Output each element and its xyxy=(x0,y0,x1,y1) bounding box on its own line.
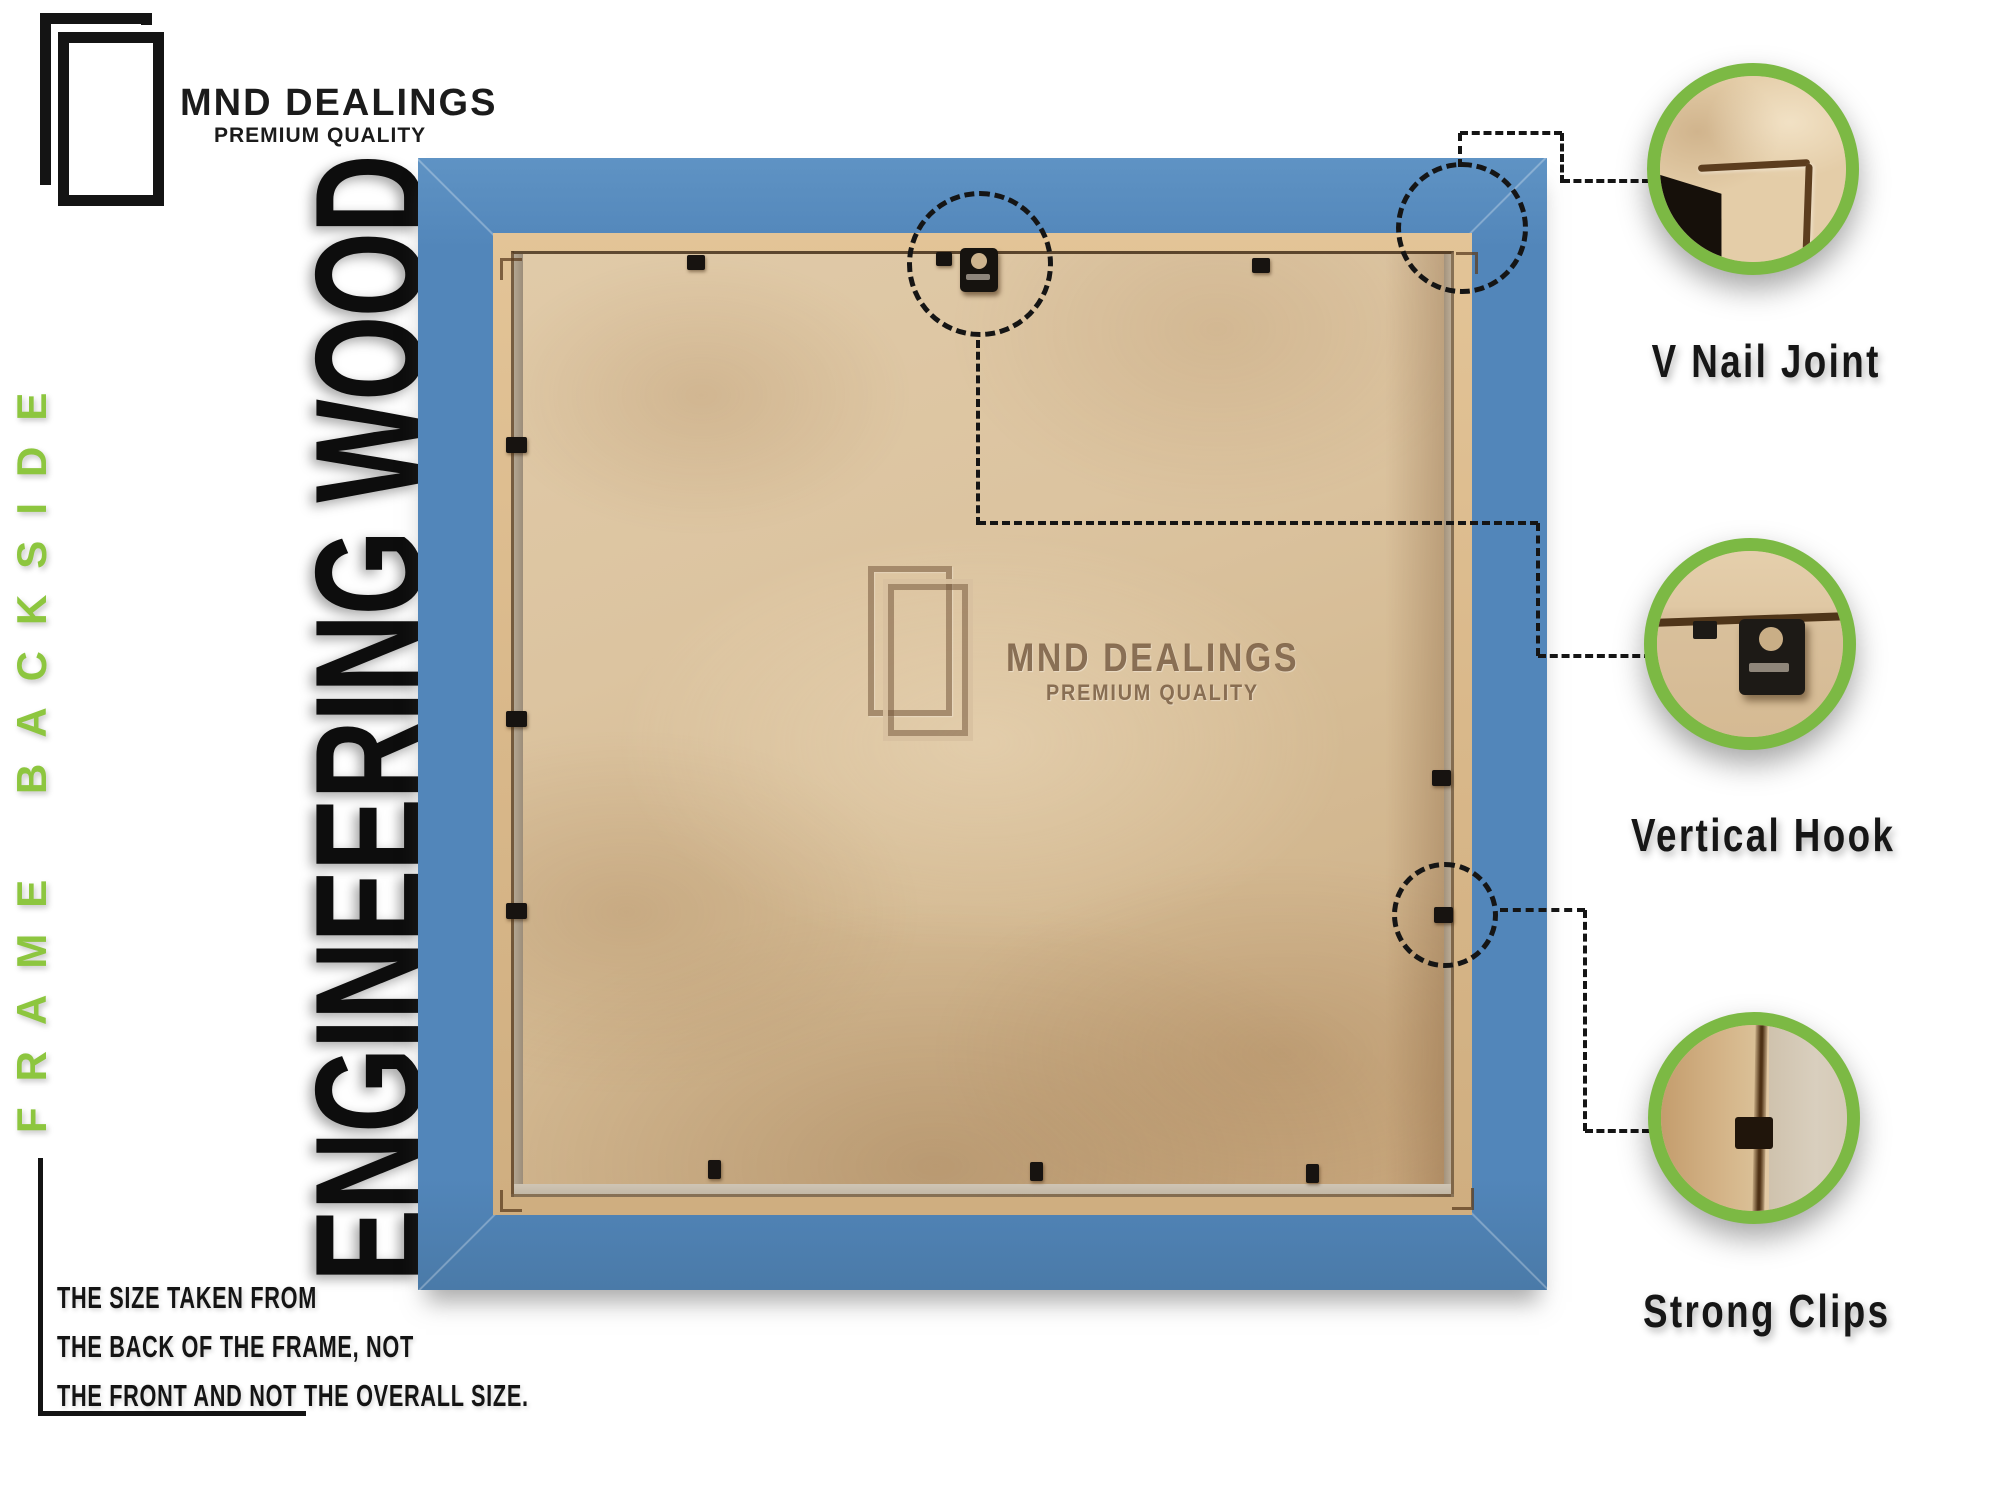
callout-connector xyxy=(1536,523,1540,656)
v-nail-corner-icon xyxy=(500,1190,522,1212)
note-bracket xyxy=(38,1158,43,1414)
side-label: FRAME BACKSIDE xyxy=(8,353,56,1133)
note-line-text: THE SIZE TAKEN FROM xyxy=(57,1276,317,1319)
callout-thumb-v-nail-joint xyxy=(1647,63,1859,275)
v-nail-corner-icon xyxy=(1452,1188,1474,1210)
dashed-circle-hook xyxy=(907,191,1053,337)
dashed-circle-clip xyxy=(1392,862,1498,968)
callout-connector xyxy=(976,340,980,525)
board-bevel xyxy=(1444,254,1451,1194)
callout-label-text: Vertical Hook xyxy=(1631,808,1895,862)
clip-icon xyxy=(1735,1117,1773,1149)
frame-miter-line xyxy=(418,1212,497,1291)
v-nail-groove xyxy=(1802,164,1812,260)
clip-icon xyxy=(506,437,527,453)
callout-connector xyxy=(1500,908,1585,912)
watermark-logo-icon-front xyxy=(888,584,968,736)
vertical-hook-macro-photo xyxy=(1657,551,1843,737)
callout-connector xyxy=(978,521,1538,525)
callout-label-vertical-hook: Vertical Hook xyxy=(1563,808,1963,862)
note-line-text: THE FRONT AND NOT THE OVERALL SIZE. xyxy=(57,1374,529,1417)
note-line: THE FRONT AND NOT THE OVERALL SIZE. xyxy=(57,1374,731,1423)
callout-connector xyxy=(1562,179,1650,183)
v-nail-corner-icon xyxy=(500,258,522,280)
callout-connector xyxy=(1560,133,1564,183)
board-bevel xyxy=(514,1184,1451,1194)
frame-miter-line xyxy=(1469,1211,1548,1290)
callout-connector xyxy=(1583,910,1587,1131)
mdf-back-board: MND DEALINGS PREMIUM QUALITY xyxy=(511,251,1454,1197)
hook-icon xyxy=(1739,619,1805,695)
clip-icon xyxy=(1030,1162,1043,1181)
clip-icon xyxy=(1252,258,1270,273)
clip-icon xyxy=(1693,621,1717,639)
hook-arch xyxy=(1759,627,1783,651)
callout-connector xyxy=(1460,131,1562,135)
callout-connector xyxy=(1458,133,1462,167)
clip-icon xyxy=(1306,1164,1319,1183)
callout-label-v-nail-joint: V Nail Joint xyxy=(1566,334,1966,388)
dashed-circle-corner xyxy=(1396,162,1528,294)
watermark-tagline: PREMIUM QUALITY xyxy=(1046,680,1283,706)
callout-connector xyxy=(1585,1129,1650,1133)
clip-icon xyxy=(708,1160,721,1179)
callout-label-text: Strong Clips xyxy=(1643,1284,1891,1338)
v-nail-macro-photo xyxy=(1660,76,1846,262)
callout-label-text: V Nail Joint xyxy=(1651,334,1880,388)
strong-clips-macro-photo xyxy=(1661,1025,1847,1211)
callout-connector xyxy=(1538,654,1652,658)
note-line: THE BACK OF THE FRAME, NOT xyxy=(57,1325,731,1374)
callout-thumb-strong-clips xyxy=(1648,1012,1860,1224)
note-line-text: THE BACK OF THE FRAME, NOT xyxy=(57,1325,414,1368)
frame-miter-line xyxy=(417,158,496,237)
callout-thumb-vertical-hook xyxy=(1644,538,1856,750)
clip-icon xyxy=(1432,770,1451,786)
v-nail-groove xyxy=(1698,159,1810,172)
callout-label-strong-clips: Strong Clips xyxy=(1567,1284,1967,1338)
hook-slot xyxy=(1749,663,1789,672)
size-note: THE SIZE TAKEN FROM THE BACK OF THE FRAM… xyxy=(57,1276,731,1423)
v-nail-shadow-edge xyxy=(1648,174,1777,275)
watermark-name: MND DEALINGS xyxy=(1006,636,1351,681)
clip-icon xyxy=(506,903,527,919)
watermark-name-text: MND DEALINGS xyxy=(1006,636,1299,681)
clip-icon xyxy=(506,711,527,727)
watermark-tagline-text: PREMIUM QUALITY xyxy=(1046,680,1259,706)
strip-right-area xyxy=(1769,1025,1847,1211)
clip-icon xyxy=(687,255,705,270)
brand-logo-icon-front xyxy=(58,32,164,206)
